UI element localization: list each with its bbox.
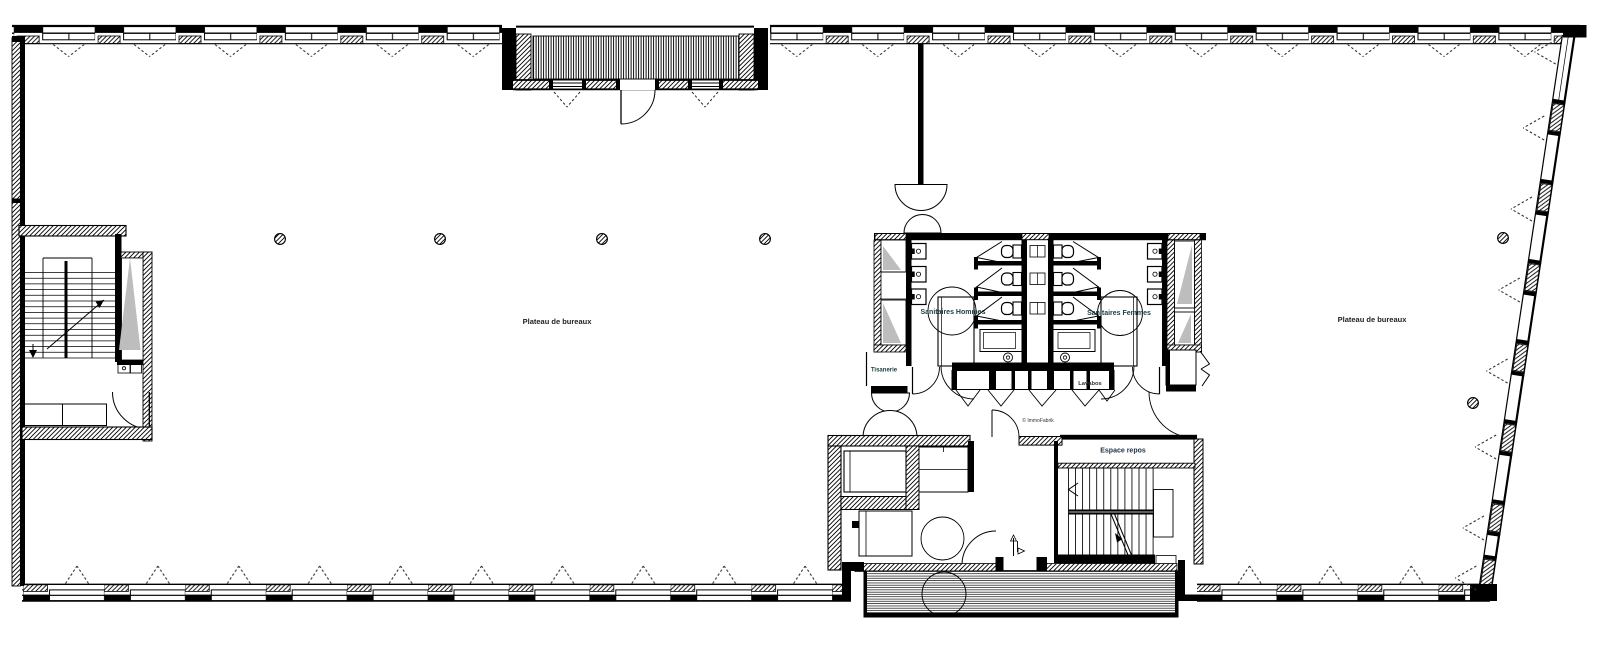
svg-text:Sanitaires Hommes: Sanitaires Hommes (921, 309, 986, 316)
svg-text:Lavabos: Lavabos (1078, 381, 1102, 387)
svg-text:© ImmoFabrik: © ImmoFabrik (1022, 417, 1054, 424)
svg-text:Sanitaires Femmes: Sanitaires Femmes (1087, 310, 1151, 317)
svg-text:Plateau de bureaux: Plateau de bureaux (523, 317, 593, 326)
svg-text:Espace repos: Espace repos (1100, 448, 1146, 455)
svg-text:Plateau de bureaux: Plateau de bureaux (1338, 315, 1408, 324)
svg-text:Tisanerie: Tisanerie (871, 368, 898, 374)
